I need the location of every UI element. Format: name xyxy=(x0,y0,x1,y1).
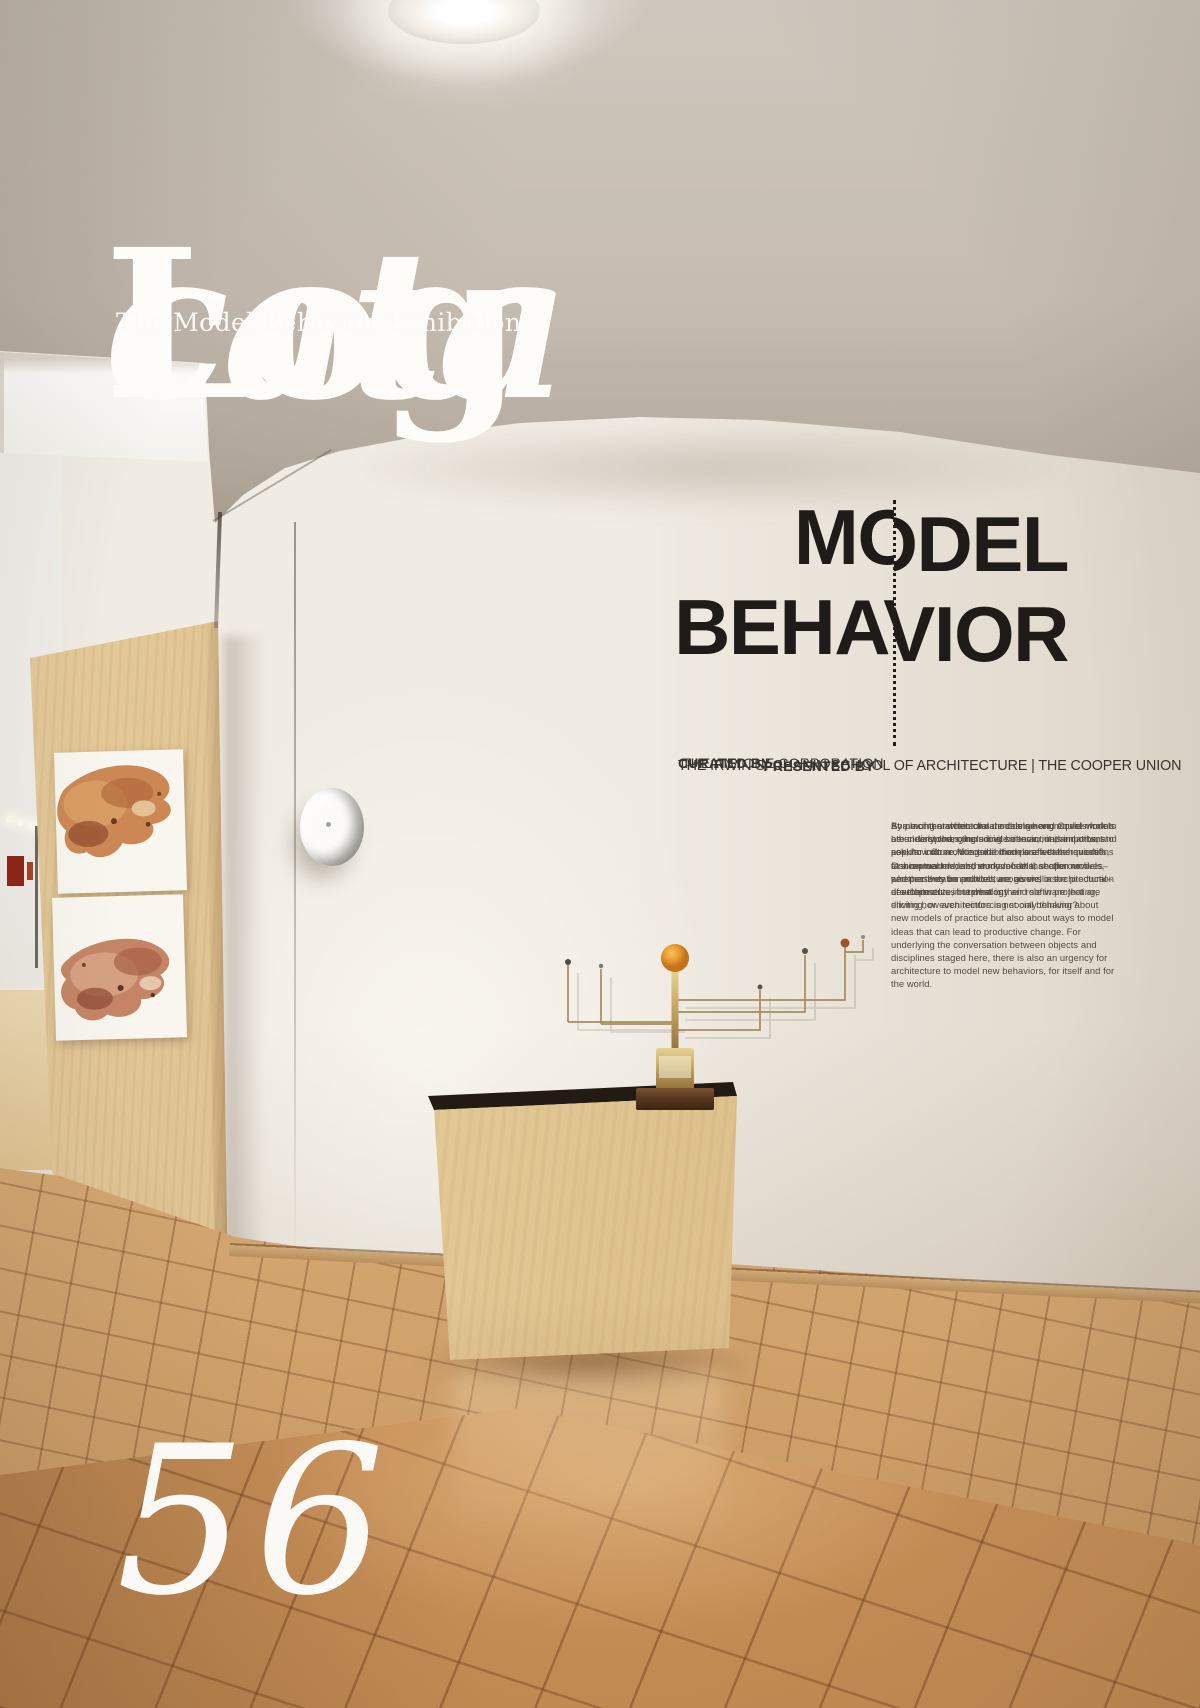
dotted-cut-line xyxy=(893,500,896,746)
corridor-post xyxy=(35,826,38,968)
planet-sphere xyxy=(841,939,850,948)
magazine-cover: MODEL MODEL BEHAVIOR BEHAVIOR CURATED BY… xyxy=(0,0,1200,1708)
orrery-glass xyxy=(659,1056,691,1078)
corridor-lamp-icon xyxy=(6,816,13,823)
exhibition-headline: MODEL MODEL BEHAVIOR BEHAVIOR xyxy=(605,495,1068,691)
masthead-title: cataLog xyxy=(104,222,1004,452)
red-artwork-glimpse xyxy=(7,856,24,886)
planet-sphere xyxy=(758,985,763,990)
panel-cast-shadow xyxy=(224,636,274,1304)
corridor-lamp-icon xyxy=(17,819,24,826)
wall-clock xyxy=(300,788,364,866)
artwork-print-bottom xyxy=(52,894,187,1041)
wall-seam-line xyxy=(294,522,296,1258)
orrery-model xyxy=(540,855,910,1115)
red-artwork-glimpse xyxy=(27,862,33,880)
splatter-artwork xyxy=(54,749,187,894)
splatter-artwork xyxy=(52,894,187,1041)
orrery-arms xyxy=(568,940,863,1030)
orrery-column xyxy=(672,970,679,1052)
orrery-wood-base xyxy=(636,1088,714,1110)
pedestal-floor-reflection xyxy=(452,1368,724,1538)
planet-sphere xyxy=(565,959,571,965)
sun-sphere xyxy=(661,944,689,972)
artwork-print-top xyxy=(54,749,187,894)
cover-subtitle: The Model Behavior Exhibition xyxy=(116,308,521,337)
statement-paragraph: Some of the architectural models here re… xyxy=(891,819,1117,991)
presented-by-value: THE IRWIN S. CHANIN SCHOOL OF ARCHITECTU… xyxy=(678,758,1181,774)
corridor-lamp-icon xyxy=(28,822,35,829)
planet-sphere xyxy=(599,964,603,968)
issue-number: 56 xyxy=(116,1420,393,1625)
planet-sphere xyxy=(802,948,808,954)
moon-sphere xyxy=(861,935,865,939)
